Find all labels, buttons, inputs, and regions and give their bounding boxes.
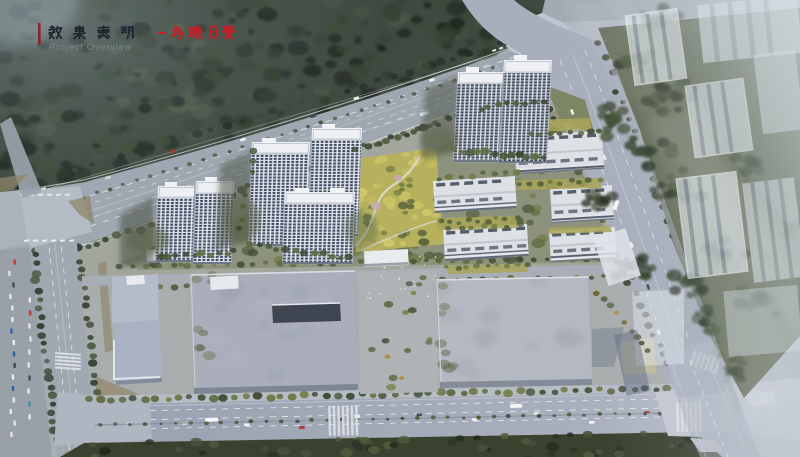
svg-text:Project Overview: Project Overview (49, 42, 132, 52)
